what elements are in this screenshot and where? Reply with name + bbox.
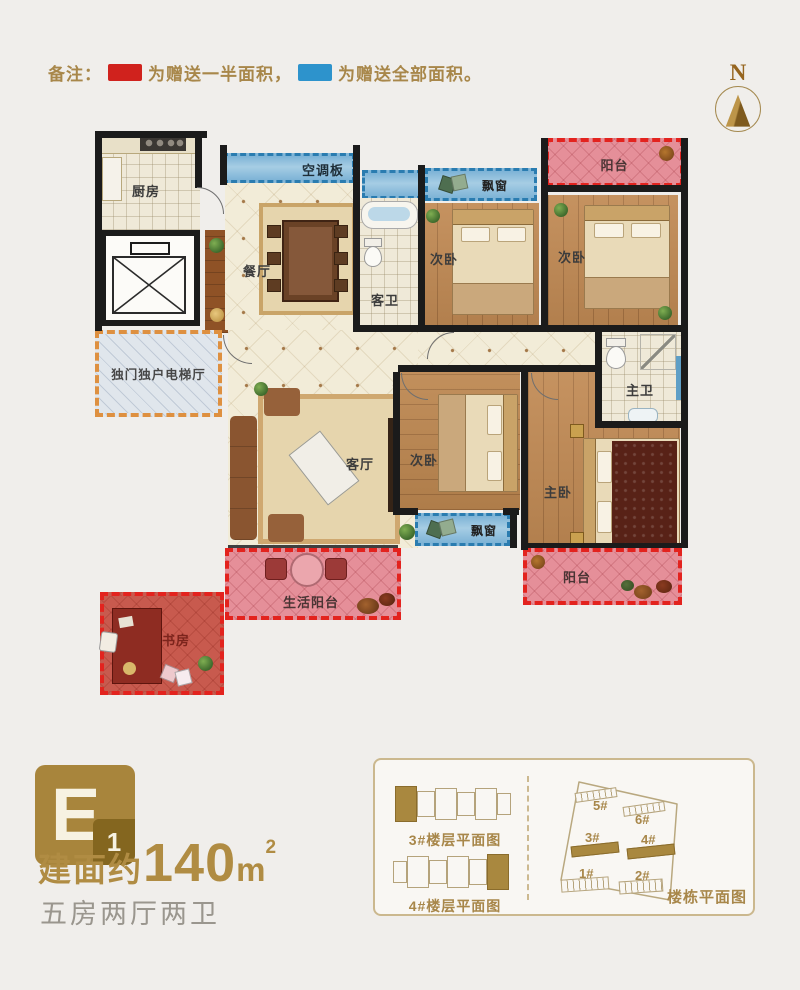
pillow-icon <box>461 227 490 242</box>
flowers-icon <box>621 580 634 591</box>
bath-bay-window <box>362 170 423 199</box>
rooms-description: 五房两厅两卫 <box>40 892 220 931</box>
building5-label: 5# <box>593 798 607 813</box>
floor-plan: 厨房 空调板 飘窗 阳台 <box>95 125 695 705</box>
wall <box>195 133 202 188</box>
door-arc <box>197 187 224 214</box>
note-label: 备注： <box>48 60 102 85</box>
plant-icon <box>209 238 224 253</box>
bed-icon <box>584 205 670 309</box>
pillow-icon <box>597 451 612 483</box>
wall <box>220 145 227 185</box>
elevator-shaft <box>100 230 200 326</box>
area-value: 140 <box>143 833 236 893</box>
wall <box>353 145 360 332</box>
wall <box>95 131 102 331</box>
dining-table-top <box>289 227 332 295</box>
full-area-swatch <box>298 64 332 81</box>
compass-north-label: N <box>712 60 764 86</box>
bed-throw <box>453 283 533 314</box>
wall <box>681 138 688 332</box>
lamp-icon <box>210 308 224 322</box>
balcony-bottom: 阳台 <box>523 548 682 605</box>
living-label: 客厅 <box>346 454 374 473</box>
bed-icon <box>438 394 518 492</box>
nightstand-icon <box>570 424 584 438</box>
floor-unit <box>429 860 447 884</box>
wall <box>398 365 595 372</box>
kitchen-label: 厨房 <box>132 181 160 200</box>
flowers-icon <box>379 593 395 606</box>
pillow-icon <box>597 501 612 533</box>
master-bedroom-label: 主卧 <box>544 482 572 501</box>
bedroom-a-label: 次卧 <box>430 249 458 268</box>
pillow-icon <box>487 405 502 435</box>
toilet-icon <box>606 346 626 369</box>
elevator-hall: 独门独户电梯厅 <box>95 330 222 417</box>
chair-icon <box>334 279 348 292</box>
floor3-plan-icon <box>395 786 511 822</box>
patio-chair-icon <box>325 558 347 580</box>
ac-panel-label: 空调板 <box>302 160 344 179</box>
bed-throw <box>585 277 669 308</box>
floor-unit <box>435 788 457 820</box>
wall <box>595 421 688 428</box>
armchair-icon <box>264 388 300 416</box>
plant-icon <box>554 203 568 217</box>
room-study: 书房 <box>100 592 224 695</box>
floor-unit <box>457 792 475 816</box>
dining-rug <box>259 203 356 315</box>
wreath-icon <box>531 555 545 569</box>
elevator-hall-label: 独门独户电梯厅 <box>111 364 206 383</box>
half-area-swatch <box>108 64 142 81</box>
chair-icon <box>334 252 348 265</box>
patio-table-icon <box>290 553 324 587</box>
paper-icon <box>118 616 134 628</box>
area-unit: m <box>236 851 265 888</box>
wall <box>528 543 681 548</box>
dining-label: 餐厅 <box>243 261 271 280</box>
pillow-icon <box>594 223 624 238</box>
room-bedroom-b: 次卧 <box>548 195 678 326</box>
room-guest-bath: 客卫 <box>358 198 421 327</box>
bed-headboard <box>585 206 669 221</box>
wall <box>95 131 207 138</box>
wall <box>353 325 688 332</box>
floor-unit <box>407 856 429 888</box>
wall <box>393 372 400 515</box>
floor-unit <box>475 788 497 820</box>
armchair-icon <box>268 514 304 542</box>
compass-needle-icon <box>724 94 752 128</box>
life-balcony: 生活阳台 <box>225 548 401 620</box>
balcony-top: 阳台 <box>545 138 684 187</box>
bed-icon <box>452 209 534 315</box>
cushion-icon <box>438 518 456 536</box>
desk-lamp-icon <box>123 662 136 675</box>
bedroom-b-label: 次卧 <box>558 247 586 266</box>
plant-icon <box>198 656 213 671</box>
floor-unit <box>497 793 511 815</box>
wall <box>595 332 602 428</box>
plant-icon <box>399 524 415 540</box>
bay-window-bottom: 飘窗 <box>415 513 510 546</box>
pillow-icon <box>497 227 526 242</box>
compass: N <box>712 60 764 132</box>
window-line <box>228 545 398 548</box>
site-plan-title: 楼栋平面图 <box>667 886 747 907</box>
minimap-box: 3#楼层平面图 4#楼层平面图 5# 6# 3# 4# 1# 2# 楼栋平面图 <box>373 758 755 916</box>
minimap-divider <box>527 776 529 900</box>
chair-icon <box>267 225 281 238</box>
sink-icon <box>102 157 122 201</box>
patio-chair-icon <box>265 558 287 580</box>
sofa-icon <box>230 416 257 540</box>
floor3-highlight-unit <box>395 786 417 822</box>
note-legend: 备注： 为赠送一半面积， 为赠送全部面积。 <box>48 60 482 85</box>
ac-panel: 空调板 <box>222 153 355 183</box>
room-living: 客厅 <box>228 330 418 548</box>
wall <box>521 372 528 550</box>
pillow-icon <box>487 451 502 481</box>
building6-label: 6# <box>635 812 649 827</box>
bedroom-c-label: 次卧 <box>410 450 438 469</box>
wreath-icon <box>659 146 674 161</box>
shower-icon <box>640 334 676 370</box>
toilet-icon <box>364 246 382 267</box>
desk-icon <box>112 608 162 684</box>
bed-headboard <box>503 395 517 491</box>
floor4-label: 4#楼层平面图 <box>385 896 525 916</box>
wall <box>418 165 425 332</box>
floor4-plan-icon <box>393 854 509 890</box>
study-label: 书房 <box>162 630 190 649</box>
floor-unit <box>447 856 469 888</box>
desk-chair-icon <box>99 631 119 653</box>
cushion-icon <box>451 174 469 192</box>
wall <box>398 508 418 515</box>
floor-unit <box>393 861 407 883</box>
room-bedroom-a: 次卧 <box>422 203 539 326</box>
floor3-label: 3#楼层平面图 <box>385 830 525 850</box>
cushion-icon <box>174 668 192 686</box>
bed-throw <box>439 395 466 491</box>
pillow-icon <box>631 223 661 238</box>
elevator-panel-icon <box>130 242 170 255</box>
chair-icon <box>334 225 348 238</box>
room-dining: 餐厅 <box>225 183 360 330</box>
compass-icon <box>715 86 761 132</box>
flowers-icon <box>357 598 379 614</box>
master-bed-icon <box>583 438 680 546</box>
life-balcony-label: 生活阳台 <box>283 592 339 611</box>
balcony-bottom-label: 阳台 <box>563 567 591 586</box>
bed-headboard <box>584 439 596 545</box>
wall <box>681 332 688 548</box>
bathtub-icon <box>361 201 418 229</box>
wall <box>548 185 681 192</box>
area-exponent: 2 <box>265 837 276 858</box>
bay-window-label: 飘窗 <box>482 177 508 194</box>
bay-window2-label: 飘窗 <box>471 522 497 539</box>
full-area-text: 为赠送全部面积。 <box>338 60 482 85</box>
floor-unit <box>417 791 435 817</box>
flowers-icon <box>656 580 672 593</box>
wall <box>541 138 548 332</box>
floor-unit <box>469 859 487 885</box>
bed-blanket <box>612 441 677 543</box>
plant-icon <box>426 209 440 223</box>
chair-icon <box>267 279 281 292</box>
wall <box>510 513 517 548</box>
room-master-bath: 主卫 <box>598 330 681 427</box>
flowers-icon <box>634 585 652 599</box>
guest-bath-label: 客卫 <box>371 290 399 309</box>
elevator-x-icon <box>112 256 186 314</box>
bathtub-water <box>368 207 410 221</box>
area-line: 建面约140m2 <box>38 832 276 894</box>
area-prefix: 建面约 <box>38 851 143 888</box>
plant-icon <box>254 382 268 396</box>
bed-headboard <box>453 210 533 225</box>
half-area-text: 为赠送一半面积， <box>148 60 292 85</box>
floor4-highlight-unit <box>487 854 509 890</box>
plant-icon <box>658 306 672 320</box>
floorplan-page: 备注： 为赠送一半面积， 为赠送全部面积。 N 厨房 <box>0 0 800 990</box>
master-bath-label: 主卫 <box>626 380 654 399</box>
room-kitchen: 厨房 <box>100 133 200 230</box>
bay-window-top: 飘窗 <box>425 168 537 201</box>
dining-table-icon <box>282 220 339 302</box>
